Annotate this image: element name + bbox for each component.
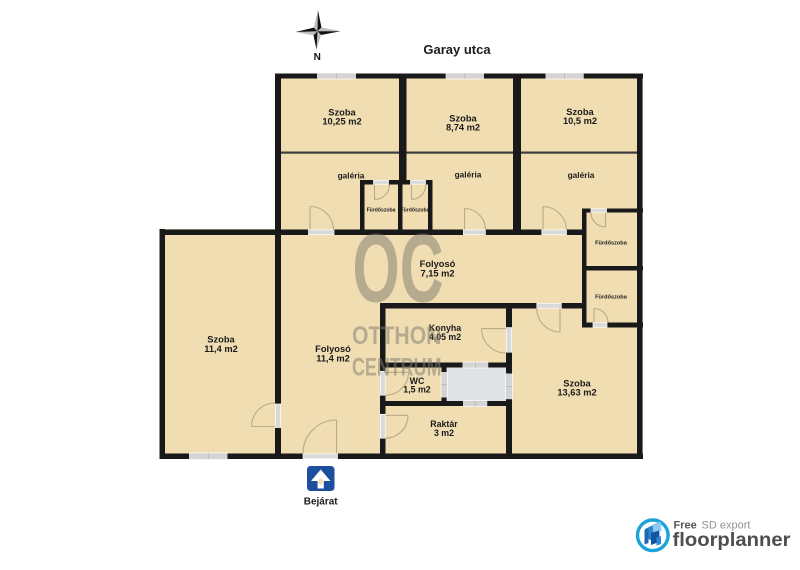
svg-text:Szoba: Szoba (207, 334, 235, 344)
svg-text:galéria: galéria (568, 170, 595, 180)
svg-text:10,25 m2: 10,25 m2 (322, 116, 361, 126)
svg-text:Bejárat: Bejárat (304, 496, 339, 507)
svg-text:13,63 m2: 13,63 m2 (557, 387, 596, 397)
svg-text:Fürdőszoba: Fürdőszoba (595, 294, 628, 300)
svg-text:Garay utca: Garay utca (423, 42, 491, 57)
svg-text:3 m2: 3 m2 (434, 428, 454, 438)
svg-text:10,5 m2: 10,5 m2 (563, 116, 597, 126)
svg-text:Folyosó: Folyosó (315, 344, 351, 354)
svg-text:11,4 m2: 11,4 m2 (316, 353, 350, 363)
svg-text:11,4 m2: 11,4 m2 (204, 344, 238, 354)
svg-text:N: N (314, 52, 321, 63)
svg-text:galéria: galéria (338, 170, 365, 180)
svg-text:1,5 m2: 1,5 m2 (403, 385, 430, 395)
svg-text:Fürdőszoba: Fürdőszoba (401, 207, 430, 213)
svg-text:galéria: galéria (455, 170, 482, 180)
svg-text:8,74 m2: 8,74 m2 (446, 122, 480, 132)
svg-text:OTTHON: OTTHON (352, 322, 442, 350)
svg-text:OC: OC (353, 214, 444, 323)
svg-text:Fürdőszoba: Fürdőszoba (367, 207, 396, 213)
svg-text:Fürdőszoba: Fürdőszoba (595, 240, 628, 246)
svg-text:CENTRUM: CENTRUM (352, 354, 442, 382)
svg-text:floorplanner: floorplanner (673, 529, 791, 551)
